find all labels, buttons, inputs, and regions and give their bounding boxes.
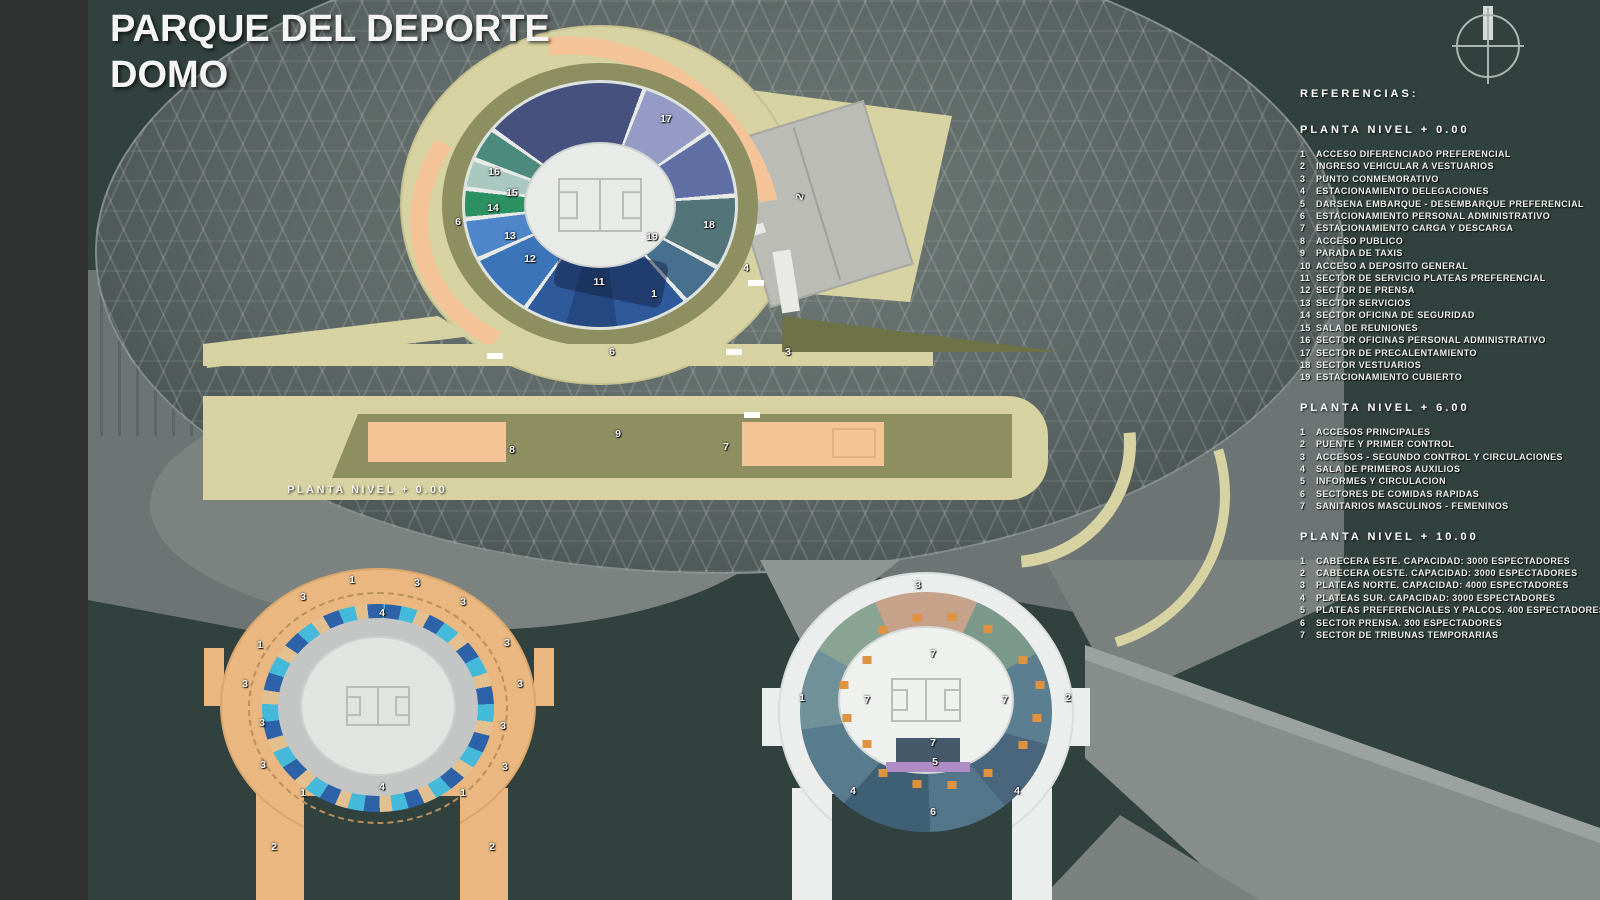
sports-court	[346, 686, 410, 726]
title-line-1: PARQUE DEL DEPORTE	[110, 6, 670, 52]
reference-item: 4SALA DE PRIMEROS AUXILIOS	[1300, 463, 1562, 475]
north-compass-icon	[1452, 6, 1524, 78]
vomitory-dot	[1019, 656, 1028, 664]
section-heading: PLANTA NIVEL + 6.00	[1300, 402, 1562, 414]
references-title: REFERENCIAS:	[1300, 88, 1562, 100]
references-panel: REFERENCIAS: PLANTA NIVEL + 0.00 1ACCESO…	[1300, 88, 1562, 659]
vomitory-dot	[948, 613, 957, 621]
reference-item: 19ESTACIONAMIENTO CUBIERTO	[1300, 371, 1562, 383]
left-edge-bar	[0, 0, 88, 900]
vomitory-dot	[1036, 681, 1045, 689]
reference-item: 15SALA DE REUNIONES	[1300, 322, 1562, 334]
reference-item: 5PLATEAS PREFERENCIALES Y PALCOS. 400 ES…	[1300, 604, 1562, 616]
reference-section-level-0: PLANTA NIVEL + 0.00 1ACCESO DIFERENCIADO…	[1300, 124, 1562, 384]
reference-list: 1CABECERA ESTE. CAPACIDAD: 3000 ESPECTAD…	[1300, 555, 1562, 642]
reference-item: 6SECTOR PRENSA. 300 ESPECTADORES	[1300, 617, 1562, 629]
reference-item: 3PLATEAS NORTE. CAPACIDAD: 4000 ESPECTAD…	[1300, 579, 1562, 591]
reference-item: 2PUENTE Y PRIMER CONTROL	[1300, 438, 1562, 450]
section-heading: PLANTA NIVEL + 0.00	[1300, 124, 1562, 136]
reference-item: 1CABECERA ESTE. CAPACIDAD: 3000 ESPECTAD…	[1300, 555, 1562, 567]
vomitory-dot	[984, 769, 993, 777]
title-line-2: DOMO	[110, 52, 670, 98]
reference-list: 1ACCESOS PRINCIPALES 2PUENTE Y PRIMER CO…	[1300, 426, 1562, 513]
crosswalk-mark	[744, 412, 760, 418]
reference-item: 5DARSENA EMBARQUE - DESEMBARQUE PREFEREN…	[1300, 198, 1562, 210]
reference-item: 4PLATEAS SUR. CAPACIDAD: 3000 ESPECTADOR…	[1300, 592, 1562, 604]
reference-item: 10ACCESO A DEPOSITO GENERAL	[1300, 260, 1562, 272]
reference-item: 2INGRESO VEHICULAR A VESTUARIOS	[1300, 160, 1562, 172]
crosswalk-mark	[726, 349, 742, 355]
stage-block	[896, 738, 960, 764]
reference-item: 11SECTOR DE SERVICIO PLATEAS PREFERENCIA…	[1300, 272, 1562, 284]
reference-item: 13SECTOR SERVICIOS	[1300, 297, 1562, 309]
reference-item: 17SECTOR DE PRECALENTAMIENTO	[1300, 347, 1562, 359]
reference-item: 18SECTOR VESTUARIOS	[1300, 359, 1562, 371]
vomitory-dot	[879, 626, 888, 634]
crosswalk-mark	[487, 353, 503, 359]
reference-item: 3PUNTO CONMEMORATIVO	[1300, 173, 1562, 185]
reference-section-level-10: PLANTA NIVEL + 10.00 1CABECERA ESTE. CAP…	[1300, 531, 1562, 642]
vomitory-dot	[984, 625, 993, 633]
reference-list: 1ACCESO DIFERENCIADO PREFERENCIAL 2INGRE…	[1300, 148, 1562, 384]
crosswalk-mark	[748, 280, 764, 286]
page-title: PARQUE DEL DEPORTE DOMO	[110, 6, 670, 98]
reference-item: 14SECTOR OFICINA DE SEGURIDAD	[1300, 309, 1562, 321]
presentation-board: PLANTA NIVEL + 0.00	[0, 0, 1600, 900]
reference-item: 9PARADA DE TAXIS	[1300, 247, 1562, 259]
sports-court	[891, 678, 961, 722]
plan-caption: PLANTA NIVEL + 0.00	[287, 484, 447, 496]
reference-item: 1ACCESO DIFERENCIADO PREFERENCIAL	[1300, 148, 1562, 160]
vomitory-dot	[863, 656, 872, 664]
loading-platform	[742, 422, 884, 466]
vomitory-dot	[1019, 741, 1028, 749]
reference-item: 5INFORMES Y CIRCULACION	[1300, 475, 1562, 487]
sports-court	[558, 178, 642, 232]
reference-item: 3ACCESOS - SEGUNDO CONTROL Y CIRCULACION…	[1300, 451, 1562, 463]
reference-item: 6ESTACIONAMIENTO PERSONAL ADMINISTRATIVO	[1300, 210, 1562, 222]
reference-item: 7ESTACIONAMIENTO CARGA Y DESCARGA	[1300, 222, 1562, 234]
vomitory-dot	[948, 781, 957, 789]
reference-item: 7SECTOR DE TRIBUNAS TEMPORARIAS	[1300, 629, 1562, 641]
section-heading: PLANTA NIVEL + 10.00	[1300, 531, 1562, 543]
side-stub	[534, 648, 554, 706]
stage-strip	[886, 762, 970, 772]
reference-section-level-6: PLANTA NIVEL + 6.00 1ACCESOS PRINCIPALES…	[1300, 402, 1562, 513]
vomitory-dot	[863, 740, 872, 748]
reference-item: 1ACCESOS PRINCIPALES	[1300, 426, 1562, 438]
vomitory-dot	[843, 714, 852, 722]
reference-item: 4ESTACIONAMIENTO DELEGACIONES	[1300, 185, 1562, 197]
bus-platform	[368, 422, 506, 462]
vomitory-dot	[1033, 714, 1042, 722]
reference-item: 12SECTOR DE PRENSA	[1300, 284, 1562, 296]
vomitory-dot	[913, 614, 922, 622]
reference-item: 16SECTOR OFICINAS PERSONAL ADMINISTRATIV…	[1300, 334, 1562, 346]
vomitory-dot	[840, 681, 849, 689]
vomitory-dot	[879, 769, 888, 777]
vomitory-dot	[913, 780, 922, 788]
reference-item: 7SANITARIOS MASCULINOS - FEMENINOS	[1300, 500, 1562, 512]
reference-item: 2CABECERA OESTE. CAPACIDAD: 3000 ESPECTA…	[1300, 567, 1562, 579]
reference-item: 6SECTORES DE COMIDAS RAPIDAS	[1300, 488, 1562, 500]
reference-item: 8ACCESO PUBLICO	[1300, 235, 1562, 247]
